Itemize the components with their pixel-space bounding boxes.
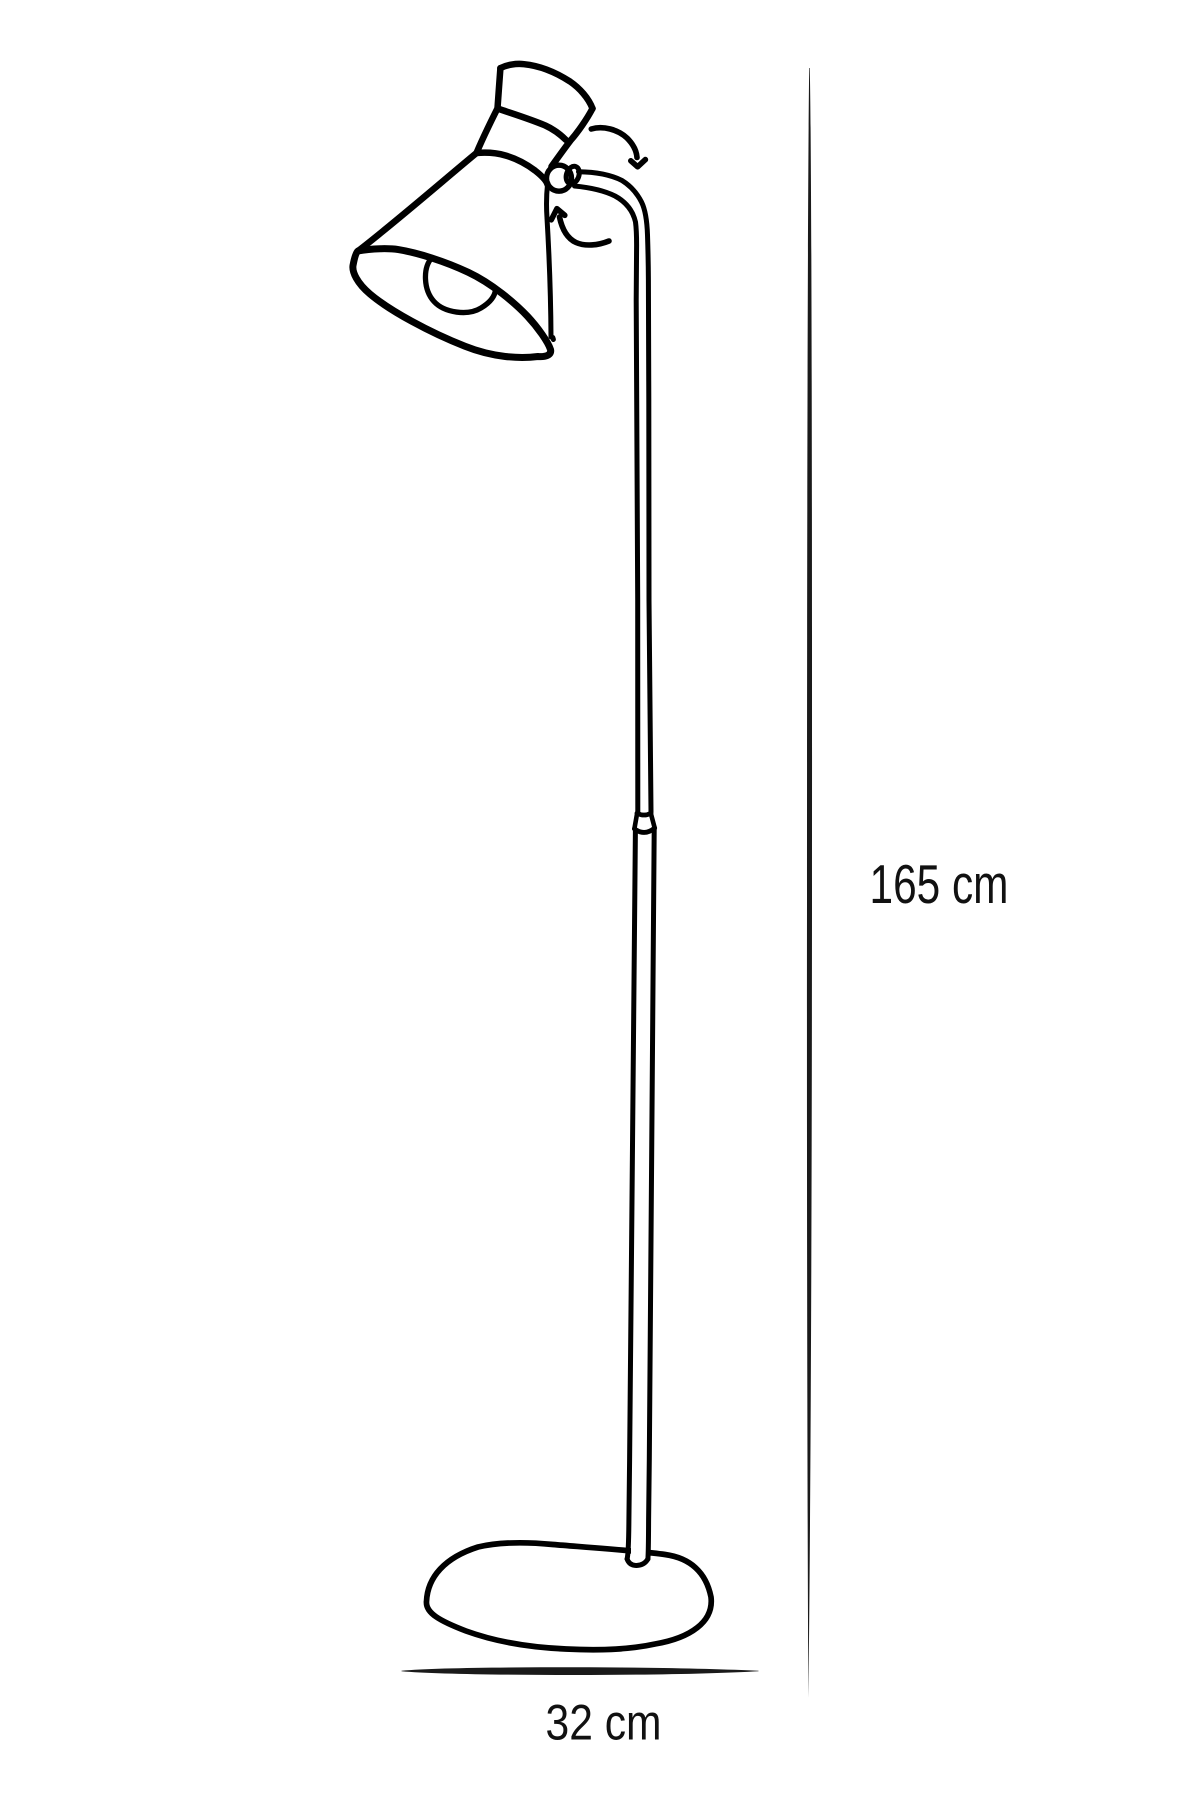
svg-text:32 cm: 32 cm — [546, 1695, 662, 1751]
svg-text:165 cm: 165 cm — [870, 853, 1009, 915]
